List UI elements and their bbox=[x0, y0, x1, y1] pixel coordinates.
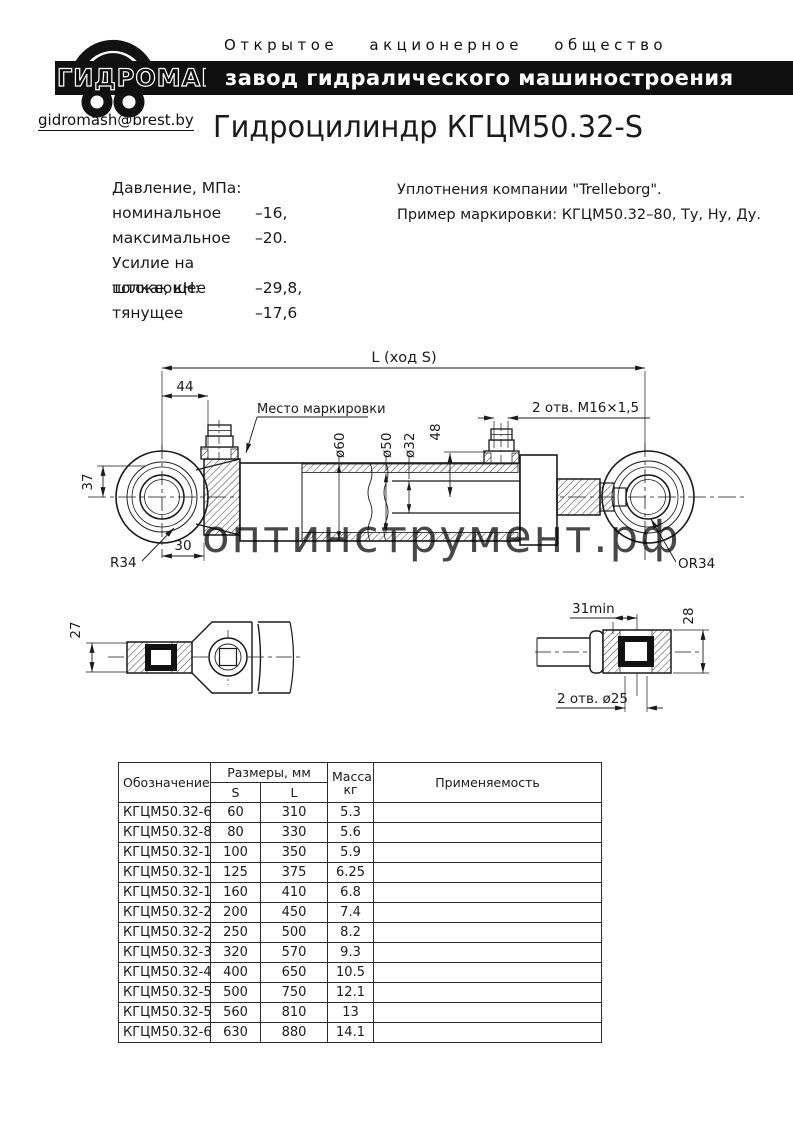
dia-32-label: ø32 bbox=[402, 433, 418, 458]
cell-s: 630 bbox=[211, 1023, 261, 1043]
dia-60-label: ø60 bbox=[332, 433, 348, 458]
cell-designation: КГЦМ50.32-80 bbox=[119, 823, 211, 843]
ports-label: 2 отв. M16×1,5 bbox=[532, 400, 639, 416]
cell-s: 400 bbox=[211, 963, 261, 983]
spec-label: Усилие на штоке, кН: bbox=[112, 251, 255, 276]
spec-label: номинальное bbox=[112, 201, 255, 226]
cell-s: 60 bbox=[211, 803, 261, 823]
cell-mass: 7.4 bbox=[328, 903, 374, 923]
logo-wordmark: ГИДРОМАШ bbox=[56, 63, 206, 93]
technical-drawing: L (ход S) 44 Место маркировки 2 отв. M16… bbox=[0, 338, 793, 722]
spec-value: –17,6 bbox=[255, 301, 297, 326]
dim-30-label: 30 bbox=[174, 538, 191, 554]
dim-31min-label: 31min bbox=[572, 601, 615, 617]
holes-25-label: 2 отв. ø25 bbox=[557, 691, 628, 707]
cell-application bbox=[374, 843, 602, 863]
cell-mass: 8.2 bbox=[328, 923, 374, 943]
cell-l: 880 bbox=[261, 1023, 328, 1043]
table-body: КГЦМ50.32-60603105.3КГЦМ50.32-80803305.6… bbox=[119, 803, 602, 1043]
table-row: КГЦМ50.32-80803305.6 bbox=[119, 823, 602, 843]
col-s: S bbox=[211, 783, 261, 803]
cell-s: 200 bbox=[211, 903, 261, 923]
spec-label: максимальное bbox=[112, 226, 255, 251]
table-row: КГЦМ50.32-63063088014.1 bbox=[119, 1023, 602, 1043]
marking-spot-label: Место маркировки bbox=[257, 402, 386, 417]
table-row: КГЦМ50.32-2502505008.2 bbox=[119, 923, 602, 943]
cell-l: 750 bbox=[261, 983, 328, 1003]
logo-text: ГИДРОМАШ bbox=[57, 64, 206, 92]
cell-application bbox=[374, 1003, 602, 1023]
col-designation: Обозначение bbox=[119, 763, 211, 803]
cell-application bbox=[374, 863, 602, 883]
cell-l: 410 bbox=[261, 883, 328, 903]
spec-label: толкающее bbox=[112, 276, 255, 301]
cell-l: 570 bbox=[261, 943, 328, 963]
cell-application bbox=[374, 983, 602, 1003]
spec-row: тянущее–17,6 bbox=[112, 301, 302, 326]
notes-block: Уплотнения компании "Trelleborg". Пример… bbox=[397, 178, 761, 228]
cell-l: 650 bbox=[261, 963, 328, 983]
dim-total-label: L (ход S) bbox=[371, 350, 436, 366]
cell-designation: КГЦМ50.32-560 bbox=[119, 1003, 211, 1023]
cell-designation: КГЦМ50.32-630 bbox=[119, 1023, 211, 1043]
watermark: оптинструмент.рф bbox=[202, 510, 681, 563]
spec-row: Давление, МПа: bbox=[112, 176, 302, 201]
datasheet-page: Открытое акционерное общество завод гидр… bbox=[0, 0, 793, 1123]
cell-designation: КГЦМ50.32-200 bbox=[119, 903, 211, 923]
col-mass: Масса, кг bbox=[328, 763, 374, 803]
banner-title: завод гидралического машиностроения bbox=[225, 61, 734, 95]
spec-row: Усилие на штоке, кН: bbox=[112, 251, 302, 276]
col-sizes: Размеры, мм bbox=[211, 763, 328, 783]
page-title: Гидроцилиндр КГЦМ50.32-S bbox=[213, 110, 643, 145]
table-row: КГЦМ50.32-1601604106.8 bbox=[119, 883, 602, 903]
table-row: КГЦМ50.32-40040065010.5 bbox=[119, 963, 602, 983]
cell-application bbox=[374, 883, 602, 903]
cell-s: 560 bbox=[211, 1003, 261, 1023]
cell-l: 375 bbox=[261, 863, 328, 883]
cell-l: 350 bbox=[261, 843, 328, 863]
sizes-table: Обозначение Размеры, мм Масса, кг Примен… bbox=[118, 762, 602, 1043]
spec-row: номинальное–16, bbox=[112, 201, 302, 226]
cell-s: 250 bbox=[211, 923, 261, 943]
cell-s: 100 bbox=[211, 843, 261, 863]
spec-label: Давление, МПа: bbox=[112, 176, 255, 201]
cell-designation: КГЦМ50.32-60 bbox=[119, 803, 211, 823]
spec-label: тянущее bbox=[112, 301, 255, 326]
radius-left-label: R34 bbox=[110, 555, 137, 571]
col-application: Применяемость bbox=[374, 763, 602, 803]
spec-row: максимальное–20. bbox=[112, 226, 302, 251]
specs-block: Давление, МПа:номинальное–16,максимально… bbox=[112, 176, 302, 326]
dim-28-label: 28 bbox=[681, 607, 697, 624]
cell-l: 310 bbox=[261, 803, 328, 823]
table-row: КГЦМ50.32-2002004507.4 bbox=[119, 903, 602, 923]
note-marking-example: Пример маркировки: КГЦМ50.32–80, Ту, Ну,… bbox=[397, 203, 761, 228]
cell-designation: КГЦМ50.32-400 bbox=[119, 963, 211, 983]
cell-mass: 5.9 bbox=[328, 843, 374, 863]
note-seals: Уплотнения компании "Trelleborg". bbox=[397, 178, 761, 203]
cell-mass: 13 bbox=[328, 1003, 374, 1023]
cell-designation: КГЦМ50.32-125 bbox=[119, 863, 211, 883]
col-mass-line2: кг bbox=[332, 783, 369, 796]
cell-s: 125 bbox=[211, 863, 261, 883]
cell-mass: 5.6 bbox=[328, 823, 374, 843]
cell-designation: КГЦМ50.32-500 bbox=[119, 983, 211, 1003]
table-row: КГЦМ50.32-50050075012.1 bbox=[119, 983, 602, 1003]
cell-application bbox=[374, 903, 602, 923]
cell-s: 320 bbox=[211, 943, 261, 963]
cell-application bbox=[374, 803, 602, 823]
spec-row: толкающее–29,8, bbox=[112, 276, 302, 301]
cell-application bbox=[374, 963, 602, 983]
spec-value: –29,8, bbox=[255, 276, 302, 301]
table-header-row-1: Обозначение Размеры, мм Масса, кг Примен… bbox=[119, 763, 602, 783]
cell-mass: 5.3 bbox=[328, 803, 374, 823]
table-row: КГЦМ50.32-60603105.3 bbox=[119, 803, 602, 823]
dim-44-label: 44 bbox=[176, 379, 193, 395]
spec-value: –20. bbox=[255, 226, 287, 251]
cell-designation: КГЦМ50.32-160 bbox=[119, 883, 211, 903]
dia-50-label: ø50 bbox=[379, 433, 395, 458]
cell-application bbox=[374, 823, 602, 843]
cell-mass: 12.1 bbox=[328, 983, 374, 1003]
cell-s: 500 bbox=[211, 983, 261, 1003]
cell-mass: 14.1 bbox=[328, 1023, 374, 1043]
cell-designation: КГЦМ50.32-100 bbox=[119, 843, 211, 863]
radius-right-label: OR34 bbox=[678, 556, 715, 572]
spec-value: –16, bbox=[255, 201, 287, 226]
dim-48-label: 48 bbox=[428, 423, 444, 440]
cell-designation: КГЦМ50.32-320 bbox=[119, 943, 211, 963]
cell-l: 330 bbox=[261, 823, 328, 843]
cell-mass: 6.8 bbox=[328, 883, 374, 903]
cell-mass: 6.25 bbox=[328, 863, 374, 883]
cell-mass: 9.3 bbox=[328, 943, 374, 963]
cell-application bbox=[374, 943, 602, 963]
cell-designation: КГЦМ50.32-250 bbox=[119, 923, 211, 943]
cell-s: 80 bbox=[211, 823, 261, 843]
cell-application bbox=[374, 1023, 602, 1043]
table-row: КГЦМ50.32-3203205709.3 bbox=[119, 943, 602, 963]
cell-l: 450 bbox=[261, 903, 328, 923]
col-mass-line1: Масса, bbox=[332, 770, 369, 783]
table-row: КГЦМ50.32-1251253756.25 bbox=[119, 863, 602, 883]
org-type-line: Открытое акционерное общество bbox=[224, 36, 667, 54]
table-row: КГЦМ50.32-56056081013 bbox=[119, 1003, 602, 1023]
table-row: КГЦМ50.32-1001003505.9 bbox=[119, 843, 602, 863]
cell-mass: 10.5 bbox=[328, 963, 374, 983]
cell-l: 500 bbox=[261, 923, 328, 943]
cell-application bbox=[374, 923, 602, 943]
cell-s: 160 bbox=[211, 883, 261, 903]
col-l: L bbox=[261, 783, 328, 803]
dim-37-label: 37 bbox=[80, 473, 96, 490]
cell-l: 810 bbox=[261, 1003, 328, 1023]
dim-27-label: 27 bbox=[68, 621, 84, 638]
